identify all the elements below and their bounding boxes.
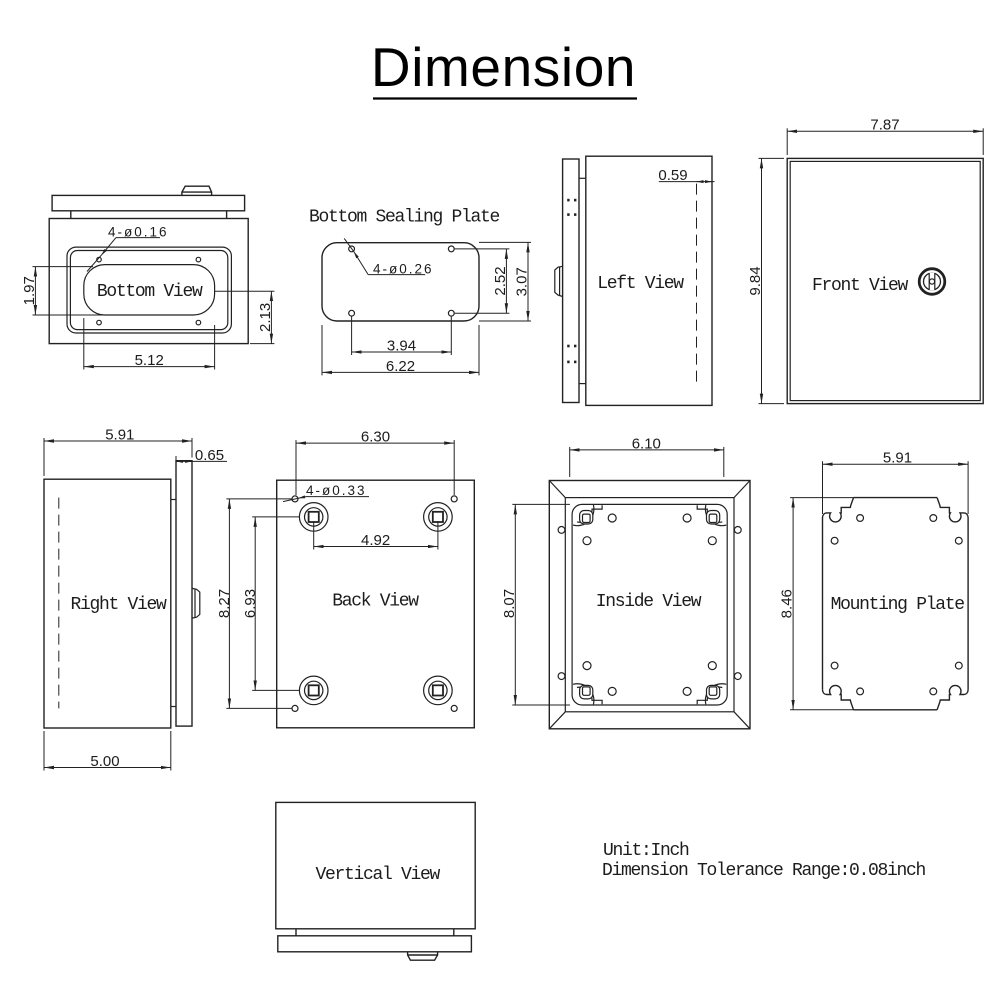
svg-text:6.10: 6.10	[632, 435, 661, 452]
svg-text:Dimension Tolerance Range:0.08: Dimension Tolerance Range:0.08inch	[602, 861, 926, 881]
svg-text:3.94: 3.94	[387, 338, 416, 355]
svg-text:2.13: 2.13	[257, 303, 274, 332]
svg-text:5.91: 5.91	[883, 450, 912, 467]
svg-text:Dimension: Dimension	[371, 36, 636, 98]
svg-text:2.52: 2.52	[492, 266, 509, 295]
svg-text:4.92: 4.92	[361, 532, 390, 549]
svg-text:7.87: 7.87	[870, 117, 899, 134]
svg-text:Right View: Right View	[70, 595, 167, 615]
svg-text:Vertical View: Vertical View	[316, 865, 441, 885]
svg-text:4-ø0.16: 4-ø0.16	[108, 224, 169, 239]
svg-text:8.07: 8.07	[501, 589, 518, 618]
svg-text:4-ø0.33: 4-ø0.33	[306, 483, 367, 498]
svg-text:3.07: 3.07	[514, 267, 531, 296]
svg-text:Bottom Sealing Plate: Bottom Sealing Plate	[309, 208, 500, 228]
svg-text:5.91: 5.91	[105, 426, 134, 443]
svg-text:Bottom View: Bottom View	[97, 282, 203, 302]
svg-text:Unit:Inch: Unit:Inch	[603, 841, 689, 861]
svg-text:0.65: 0.65	[195, 447, 224, 464]
svg-text:6.30: 6.30	[361, 429, 390, 446]
svg-text:Back View: Back View	[332, 592, 419, 612]
svg-text:5.00: 5.00	[90, 753, 119, 770]
svg-text:Front View: Front View	[812, 276, 909, 296]
svg-text:Left View: Left View	[597, 274, 684, 294]
svg-text:8.46: 8.46	[779, 589, 796, 618]
svg-text:6.22: 6.22	[386, 358, 415, 375]
svg-text:0.59: 0.59	[658, 167, 687, 184]
svg-text:1.97: 1.97	[21, 276, 38, 305]
svg-text:Inside View: Inside View	[596, 592, 702, 612]
svg-text:9.84: 9.84	[747, 266, 764, 295]
svg-text:6.93: 6.93	[242, 589, 259, 618]
svg-text:5.12: 5.12	[135, 352, 164, 369]
svg-text:Mounting Plate: Mounting Plate	[831, 595, 965, 615]
svg-text:8.27: 8.27	[216, 589, 233, 618]
